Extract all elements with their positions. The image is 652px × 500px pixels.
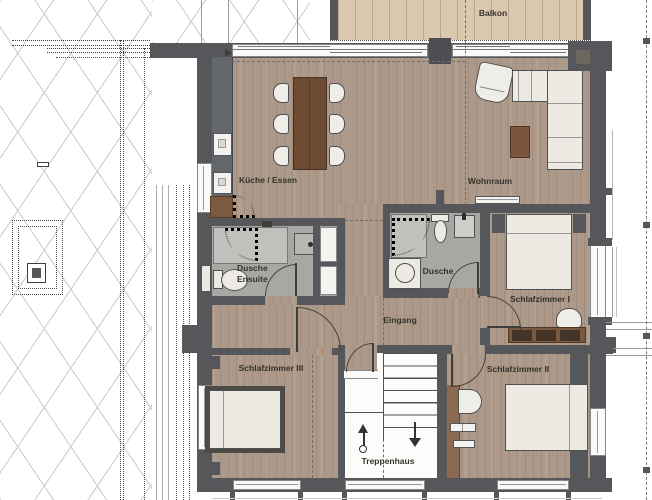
sideboard-line — [477, 199, 518, 200]
bed-pillow-line — [569, 385, 570, 450]
pergola-line — [201, 0, 202, 43]
room-label-wohnraum: Wohnraum — [445, 176, 535, 187]
room-label-schlafzimmer-2: Schlafzimmer II — [473, 364, 563, 375]
bathroom-niche — [320, 266, 337, 295]
wall-niche-stub — [313, 226, 320, 296]
floor-plan: Balkon Küche / Essen Wohnraum Dusche Ens… — [0, 0, 652, 500]
window-mullion — [597, 411, 598, 453]
roof-tick — [643, 467, 650, 473]
window-schlafzimmer2-east — [590, 408, 606, 456]
sofa-cushion-line — [548, 137, 582, 138]
bathroom-shelf — [201, 265, 211, 292]
wall-treppenhaus-right — [437, 345, 447, 478]
window-outer-frame — [616, 247, 617, 317]
window-mullion — [232, 49, 428, 50]
pergola-line — [228, 0, 229, 43]
roof-guide-line — [144, 48, 145, 500]
door-leaf — [487, 326, 521, 328]
dining-chair — [273, 114, 289, 134]
window-mullion — [597, 248, 598, 315]
window-outer-frame — [612, 247, 613, 317]
nightstand — [203, 356, 220, 369]
window-mullion — [510, 52, 566, 53]
dresser-line — [462, 424, 463, 431]
window-mullion — [452, 49, 570, 50]
room-label-schlafzimmer-3: Schlafzimmer III — [226, 363, 316, 374]
dining-table — [293, 77, 327, 170]
dining-chair — [273, 146, 289, 166]
section-line — [212, 61, 465, 62]
nightstand — [570, 451, 588, 479]
bed-pillow-line — [507, 233, 571, 234]
window-mullion — [238, 46, 330, 47]
door-opening-ensuite — [265, 296, 297, 305]
roof-guide-line — [12, 40, 150, 46]
door-leaf — [451, 354, 453, 387]
window-mullion — [236, 484, 298, 485]
desk-drawer — [512, 330, 532, 341]
roof-tick — [643, 222, 650, 228]
roof-tick — [643, 333, 650, 339]
window-schlafzimmer2-south — [497, 480, 569, 490]
desk-drawer — [536, 330, 556, 341]
door-slide-arrow-icon — [225, 49, 232, 57]
bed-pillow-line — [223, 391, 224, 448]
window-schlafzimmer3-south — [233, 480, 301, 490]
room-label-dusche: Dusche — [393, 266, 483, 277]
balcony-deck — [338, 0, 583, 40]
entry-door-leaf — [372, 343, 374, 372]
section-line — [345, 220, 383, 221]
roof-edge-line — [168, 185, 169, 500]
roof-marker — [37, 162, 49, 167]
chimney-symbol-core — [32, 268, 41, 278]
stair-arrow-base — [359, 445, 367, 453]
door-leaf — [296, 307, 298, 352]
roof-guide-line — [47, 48, 150, 53]
dresser — [453, 440, 475, 448]
coffee-table — [510, 126, 530, 158]
window-mullion — [348, 484, 422, 485]
sideboard — [475, 196, 520, 204]
dining-chair — [329, 146, 345, 166]
bed — [505, 384, 588, 451]
pergola-line — [297, 0, 298, 43]
window-treppenhaus-south — [345, 480, 425, 490]
nightstand — [570, 354, 588, 384]
kitchen-sink-basin — [218, 139, 226, 148]
dining-chair — [329, 83, 345, 103]
facade-line — [212, 498, 602, 499]
toilet-bowl-icon — [434, 220, 447, 243]
stair-arrow-up-icon — [358, 424, 368, 433]
window-mullion — [330, 52, 422, 53]
room-label-balkon: Balkon — [448, 8, 538, 19]
sofa-cushion-line — [518, 71, 519, 101]
balcony-rail-left — [330, 0, 338, 40]
wall-ensuite-right — [337, 218, 345, 305]
wall-vent-stub — [436, 190, 444, 206]
sofa-cushion-line — [548, 162, 582, 163]
roof-guide-line — [56, 57, 150, 58]
armchair-seat-line — [480, 86, 505, 92]
nightstand — [573, 214, 586, 233]
balcony-rail-right — [583, 0, 591, 40]
stair-landing-line — [345, 412, 383, 413]
room-label-eingang: Eingang — [355, 315, 445, 326]
bed — [209, 390, 281, 449]
sofa-cushion-line — [531, 71, 532, 101]
bed — [506, 214, 572, 290]
roof-tick — [643, 38, 650, 44]
sofa-cushion-line — [548, 103, 582, 104]
roof-edge-line — [156, 185, 157, 500]
roof-edge-line — [176, 185, 177, 500]
bathroom-niche — [320, 227, 337, 262]
shower-head-icon — [262, 221, 272, 227]
stair-arrow-down-icon — [409, 438, 421, 447]
room-label-dusche-ensuite: Dusche Ensuite — [237, 263, 299, 285]
balcony-edge-line — [330, 40, 591, 41]
window-schlafzimmer1 — [590, 245, 606, 318]
dining-chair — [273, 83, 289, 103]
dining-chair — [329, 114, 345, 134]
nightstand — [203, 462, 220, 475]
room-label-line: Dusche — [237, 263, 299, 274]
roof-edge-dashline — [646, 0, 647, 500]
room-label-treppenhaus: Treppenhaus — [343, 456, 433, 467]
window-mullion — [500, 484, 566, 485]
roof-guide-line — [120, 40, 124, 500]
stair-arrow-down-shaft — [414, 422, 416, 439]
window-sill — [588, 238, 612, 246]
room-label-schlafzimmer-1: Schlafzimmer I — [495, 294, 585, 305]
sink-icon — [458, 389, 482, 414]
facade-line — [612, 130, 613, 240]
window-mullion — [203, 166, 204, 210]
stair-treads — [383, 353, 437, 439]
desk-drawer — [560, 330, 580, 341]
desk-chair — [556, 308, 582, 328]
nightstand — [492, 214, 505, 233]
door-opening-schlafzimmer2 — [452, 345, 485, 354]
section-line — [465, 0, 466, 205]
room-label-kueche-essen: Küche / Essen — [223, 175, 313, 186]
dresser — [450, 423, 476, 432]
roof-edge-line — [162, 185, 163, 500]
room-label-line: Ensuite — [237, 274, 299, 285]
sofa-section-right — [547, 70, 583, 170]
sink-faucet-icon — [462, 213, 466, 220]
pergola-lattice — [152, 0, 310, 43]
kitchen-cabinet — [210, 196, 233, 218]
wall-chimney-block — [182, 325, 199, 353]
table-grain-line — [309, 80, 310, 169]
